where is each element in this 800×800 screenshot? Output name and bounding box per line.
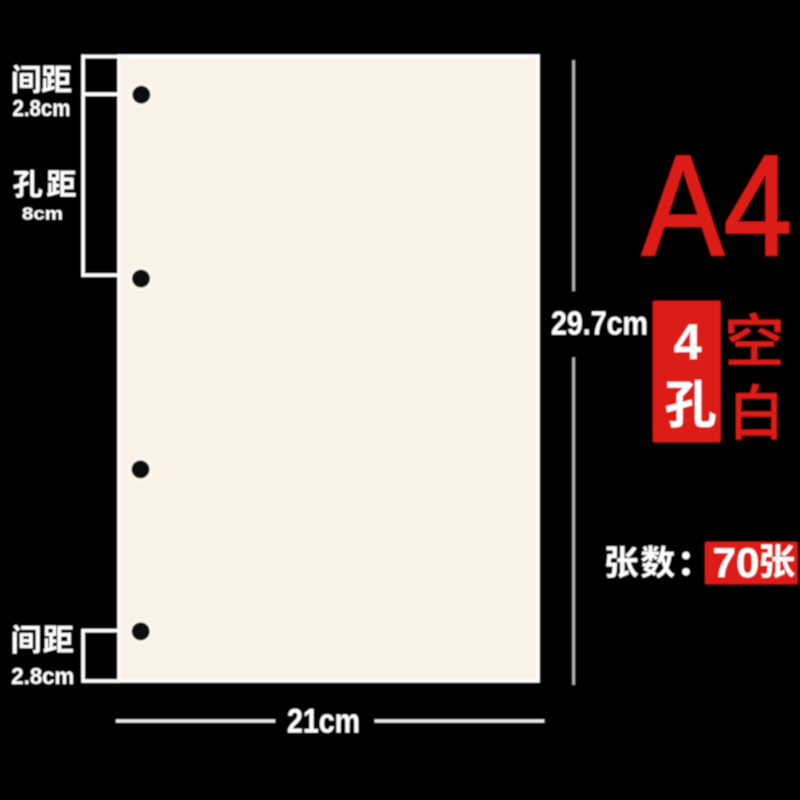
svg-text:29.7cm: 29.7cm [551,305,648,342]
svg-text:21cm: 21cm [287,703,360,741]
svg-text:4: 4 [674,314,702,370]
svg-text:2.8cm: 2.8cm [13,95,71,121]
svg-text:8cm: 8cm [22,204,63,224]
svg-text:A4: A4 [642,127,792,286]
svg-text:70: 70 [713,539,760,586]
svg-text:2.8cm: 2.8cm [11,663,74,689]
